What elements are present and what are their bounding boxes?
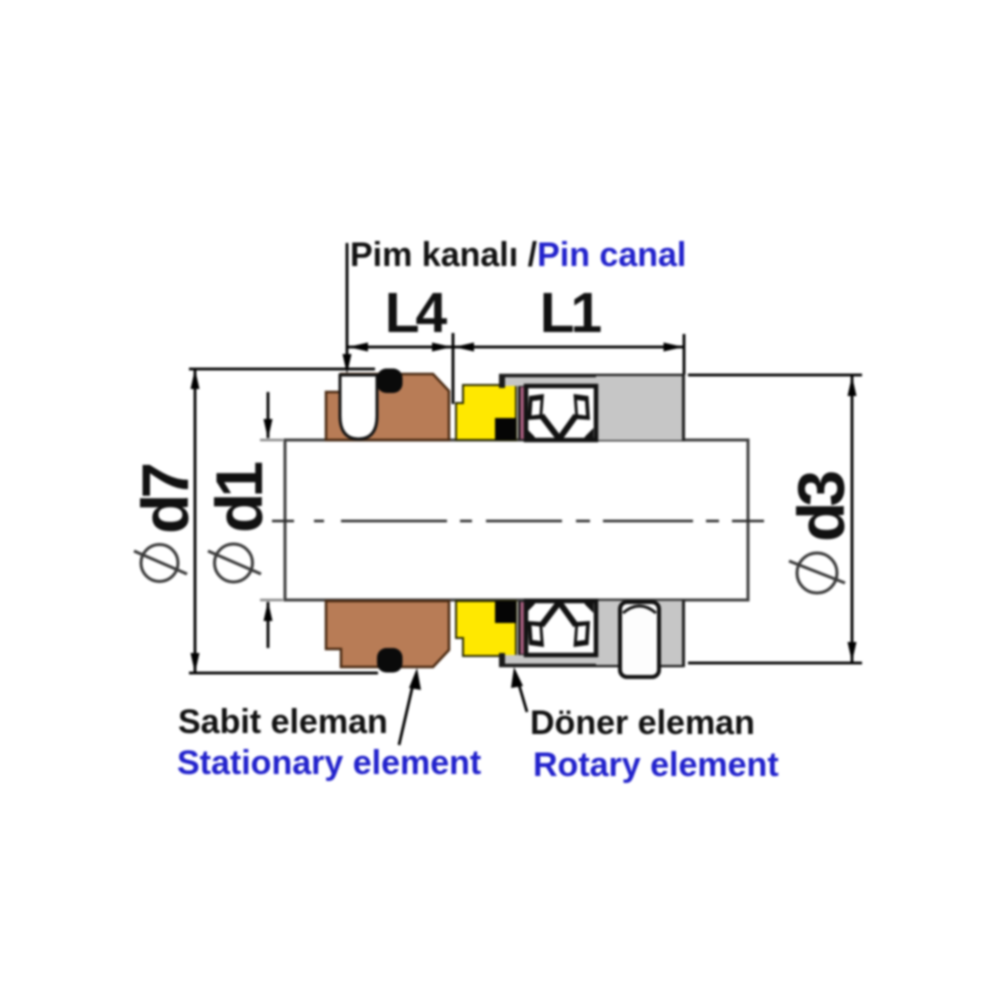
svg-text:d3: d3	[784, 472, 858, 542]
svg-text:Pim kanalı /Pin canal: Pim kanalı /Pin canal	[350, 236, 686, 274]
svg-text:Rotary element: Rotary element	[533, 746, 779, 784]
svg-text:Döner eleman: Döner eleman	[530, 704, 755, 742]
svg-text:L4: L4	[385, 281, 448, 345]
svg-text:L1: L1	[540, 281, 602, 345]
svg-text:Stationary element: Stationary element	[177, 744, 481, 782]
svg-text:d7: d7	[128, 465, 202, 534]
svg-text:d1: d1	[202, 463, 276, 533]
svg-text:Sabit eleman: Sabit eleman	[178, 703, 388, 741]
